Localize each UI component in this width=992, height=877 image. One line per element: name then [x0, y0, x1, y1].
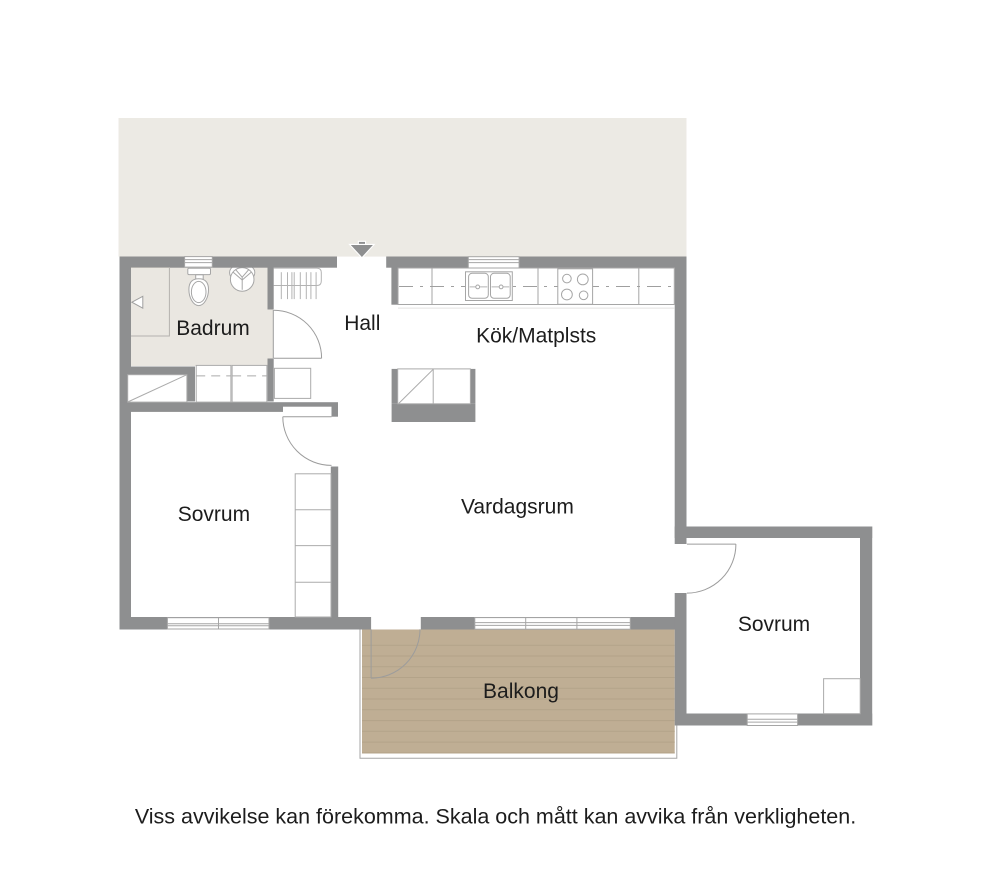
svg-text:Balkong: Balkong: [483, 680, 559, 703]
svg-text:Viss avvikelse kan förekomma.: Viss avvikelse kan förekomma. Skala och …: [135, 805, 856, 829]
svg-text:Badrum: Badrum: [176, 317, 250, 340]
svg-text:Sovrum: Sovrum: [738, 613, 810, 636]
svg-text:Kök/Matplsts: Kök/Matplsts: [476, 325, 596, 348]
svg-text:Sovrum: Sovrum: [178, 503, 250, 526]
svg-text:Hall: Hall: [344, 312, 380, 335]
svg-text:Vardagsrum: Vardagsrum: [461, 496, 574, 519]
